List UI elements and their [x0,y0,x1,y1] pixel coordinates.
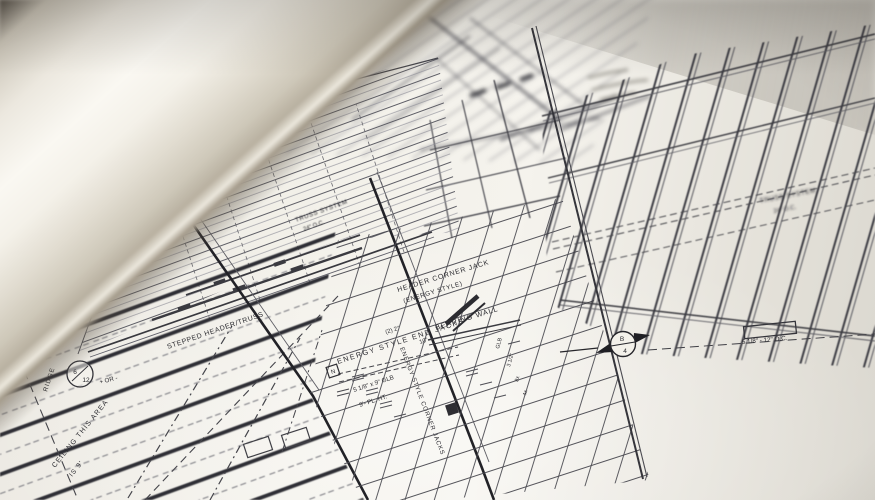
photo-of-blueprint: TRUSS SYSTEM 24" O.C. STEPPED HEADER/TRU… [0,0,875,500]
section-letter: B [620,336,624,343]
section-number: 4 [623,348,627,355]
pitch-denominator: 12 [82,377,90,384]
